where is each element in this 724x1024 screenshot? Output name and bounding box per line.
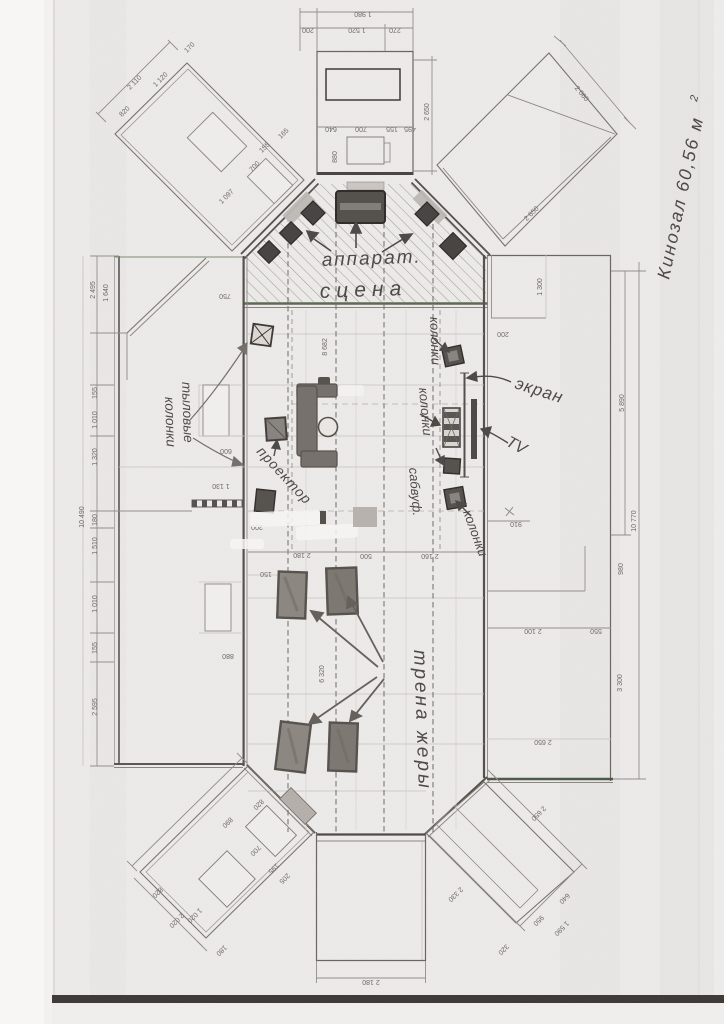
svg-text:750: 750: [219, 292, 231, 299]
svg-text:155: 155: [92, 387, 99, 399]
svg-text:200: 200: [497, 330, 509, 337]
svg-text:1 010: 1 010: [92, 595, 99, 613]
svg-text:155: 155: [92, 642, 99, 654]
svg-text:1 010: 1 010: [92, 411, 99, 429]
svg-text:2 180: 2 180: [293, 551, 311, 558]
svg-text:270: 270: [389, 26, 401, 33]
svg-text:6 320: 6 320: [319, 665, 326, 683]
svg-text:640: 640: [325, 125, 337, 132]
svg-text:аппарат.: аппарат.: [321, 247, 422, 271]
svg-text:сцена: сцена: [319, 277, 407, 303]
svg-text:2 650: 2 650: [534, 738, 552, 745]
svg-text:500: 500: [360, 552, 372, 559]
svg-text:200: 200: [302, 26, 314, 33]
svg-text:910: 910: [510, 520, 522, 527]
svg-text:180: 180: [92, 514, 99, 526]
svg-text:2 180: 2 180: [362, 978, 380, 985]
svg-text:1 520: 1 520: [348, 26, 366, 33]
svg-text:150: 150: [260, 570, 272, 577]
svg-text:2 595: 2 595: [92, 698, 99, 716]
svg-text:880: 880: [222, 652, 234, 659]
svg-text:8 682: 8 682: [322, 338, 329, 356]
svg-text:1 320: 1 320: [92, 448, 99, 466]
svg-text:1 980: 1 980: [354, 10, 372, 17]
svg-text:495: 495: [404, 125, 416, 132]
svg-text:1 640: 1 640: [103, 284, 110, 302]
svg-text:тыловые: тыловые: [179, 382, 196, 443]
svg-text:155: 155: [386, 125, 398, 132]
svg-text:10 770: 10 770: [631, 510, 638, 532]
svg-text:600: 600: [220, 447, 232, 454]
svg-text:2 650: 2 650: [424, 103, 431, 121]
svg-text:1 510: 1 510: [92, 537, 99, 555]
svg-text:10 490: 10 490: [79, 506, 86, 528]
svg-text:550: 550: [590, 627, 602, 634]
svg-text:3 300: 3 300: [617, 674, 624, 692]
svg-text:2 495: 2 495: [90, 281, 97, 299]
svg-text:880: 880: [332, 151, 339, 163]
svg-text:700: 700: [355, 125, 367, 132]
svg-text:колонки: колонки: [162, 397, 179, 448]
svg-text:1 130: 1 130: [212, 482, 230, 489]
svg-text:2 100: 2 100: [524, 627, 542, 634]
svg-text:980: 980: [618, 563, 625, 575]
svg-text:2 160: 2 160: [421, 552, 439, 559]
svg-text:1 300: 1 300: [537, 278, 544, 296]
